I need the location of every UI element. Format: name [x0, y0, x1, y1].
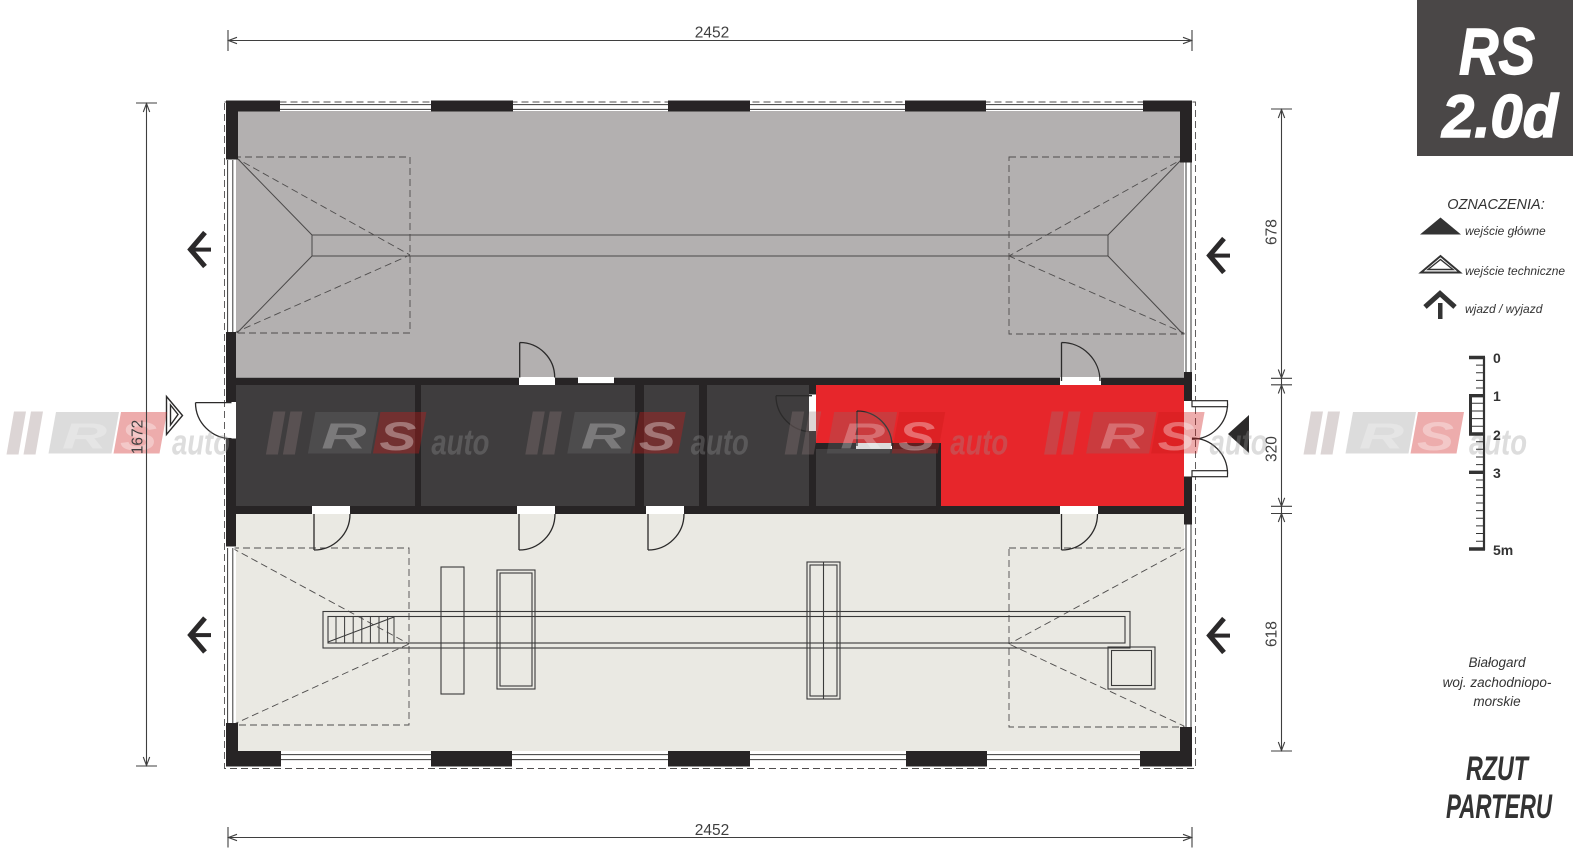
svg-text:1: 1: [1493, 388, 1501, 404]
svg-text:2452: 2452: [695, 25, 729, 42]
svg-text:RS: RS: [1459, 14, 1535, 88]
svg-text:wejście główne: wejście główne: [1465, 224, 1546, 238]
svg-text:618: 618: [1264, 621, 1281, 647]
svg-text:5m: 5m: [1493, 542, 1513, 558]
svg-text:2452: 2452: [695, 822, 729, 839]
svg-text:0: 0: [1493, 350, 1501, 366]
svg-text:RZUT: RZUT: [1466, 750, 1530, 788]
svg-text:1672: 1672: [130, 420, 147, 454]
svg-text:320: 320: [1264, 436, 1281, 462]
svg-text:678: 678: [1264, 219, 1281, 245]
svg-text:woj. zachodniopo-: woj. zachodniopo-: [1443, 675, 1552, 690]
svg-text:2.0d: 2.0d: [1441, 83, 1559, 150]
svg-text:OZNACZENIA:: OZNACZENIA:: [1447, 197, 1544, 213]
svg-text:morskie: morskie: [1473, 694, 1520, 709]
svg-text:wejście techniczne: wejście techniczne: [1465, 264, 1565, 278]
svg-text:wjazd / wyjazd: wjazd / wyjazd: [1465, 302, 1543, 316]
svg-text:PARTERU: PARTERU: [1446, 788, 1553, 826]
svg-text:2: 2: [1493, 427, 1501, 443]
svg-text:Białogard: Białogard: [1468, 655, 1526, 670]
svg-text:3: 3: [1493, 465, 1501, 481]
